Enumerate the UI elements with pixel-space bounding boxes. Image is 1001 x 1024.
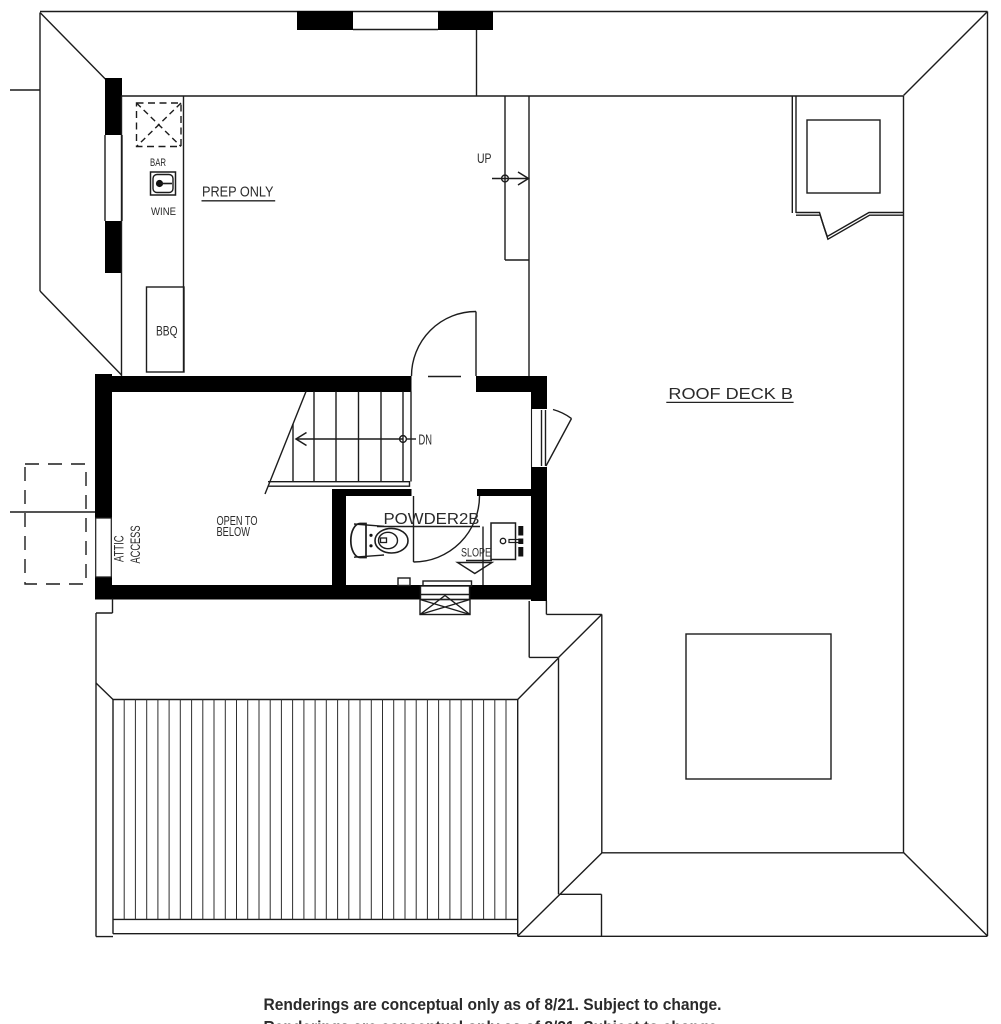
svg-text:POWDER2B: POWDER2B [384,511,480,528]
svg-text:Renderings are conceptual only: Renderings are conceptual only as of 8/2… [264,995,722,1014]
svg-text:WINE: WINE [151,206,176,218]
svg-text:SLOPE: SLOPE [461,546,491,560]
svg-text:BBQ: BBQ [156,324,178,339]
svg-text:Renderings are conceptual only: Renderings are conceptual only as of 8/2… [264,1018,722,1024]
svg-text:PREP ONLY: PREP ONLY [202,185,274,201]
svg-text:DN: DN [419,433,433,449]
svg-text:BAR: BAR [150,157,166,169]
svg-text:ROOF DECK B: ROOF DECK B [668,386,793,403]
svg-text:BELOW: BELOW [217,524,251,539]
svg-text:ATTIC: ATTIC [112,535,127,562]
svg-text:ACCESS: ACCESS [128,526,143,564]
svg-text:UP: UP [477,150,492,166]
